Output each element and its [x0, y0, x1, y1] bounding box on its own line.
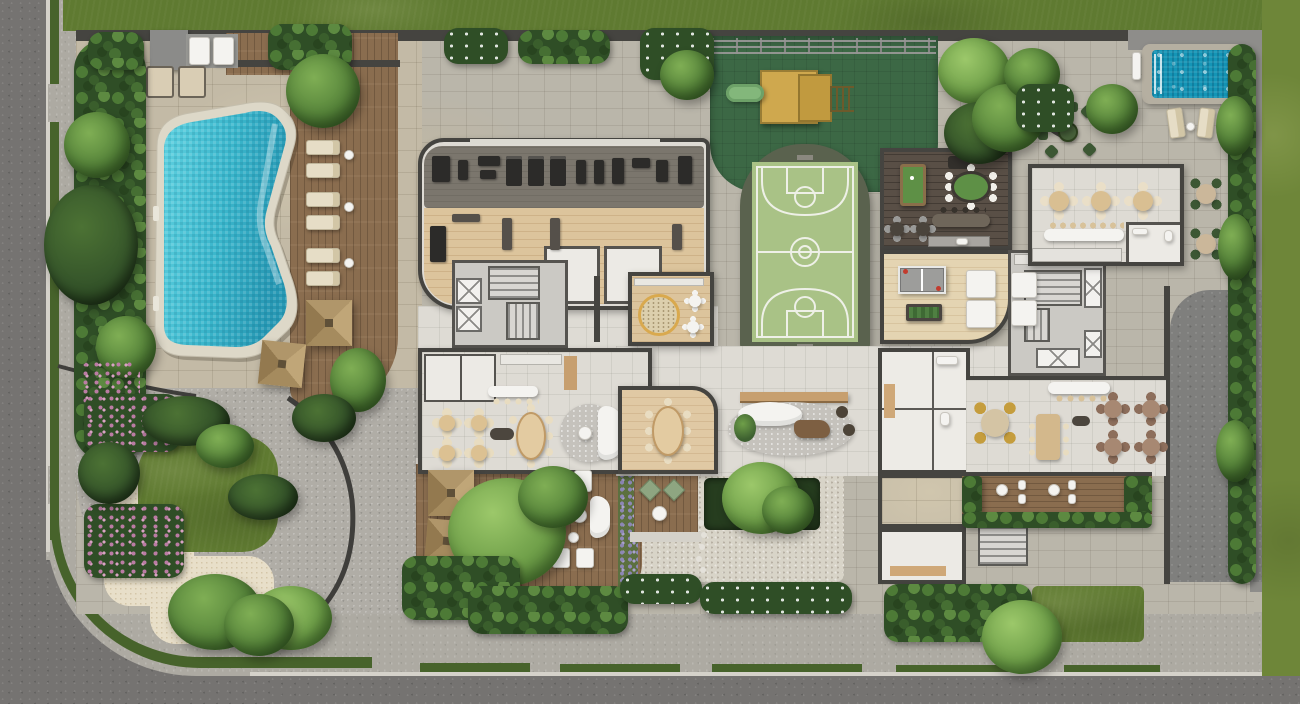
stretch-bench [672, 224, 682, 250]
deck-lounger [576, 548, 594, 568]
meditation-deck [634, 468, 698, 538]
gym-bench [478, 156, 500, 166]
terrace-chair [1018, 480, 1026, 490]
lounge-ottoman [490, 428, 514, 440]
treadmill [528, 156, 544, 186]
cable-tower [502, 218, 512, 250]
stepping-stone [699, 544, 705, 550]
lawn-right [1262, 0, 1300, 676]
lounger-side-table [1186, 122, 1195, 131]
flowering-bush [84, 504, 184, 578]
gym-bench [632, 158, 650, 168]
curb-bottom [250, 672, 1300, 676]
tree [286, 54, 360, 128]
dining-square-table [1096, 430, 1130, 464]
dining-round-table-gold [968, 396, 1022, 450]
bar-stools [936, 206, 986, 214]
storage-room [878, 474, 966, 528]
elevator-shaft [1036, 348, 1080, 368]
deck-umbrella [306, 300, 352, 346]
billiard-ball [910, 176, 914, 180]
shrub [228, 474, 298, 520]
lobby-sofa [966, 270, 996, 298]
shrub [196, 424, 254, 468]
tree [1086, 84, 1138, 134]
verge-gap-driveway [48, 84, 61, 122]
gym-machine [678, 156, 692, 184]
barbell-bench [452, 214, 480, 222]
lawn-top [63, 0, 1300, 31]
foosball-table [906, 304, 942, 321]
pavilion-table [1124, 182, 1162, 220]
billiards-table [900, 164, 926, 206]
pavilion-counter [1044, 229, 1124, 241]
lobby-plant [734, 414, 756, 442]
gym-machine [612, 158, 624, 184]
daybed [189, 37, 210, 65]
playground-ladder [830, 86, 854, 112]
washroom-fixture [1132, 228, 1148, 235]
elevator-shaft [1084, 268, 1102, 308]
lounger-side-table [344, 258, 354, 268]
play-structure-tower [798, 74, 832, 122]
kids-activity-table [684, 290, 706, 312]
terrace-planter [1124, 476, 1152, 514]
kids-activity-table [682, 316, 704, 338]
shrub [1216, 420, 1254, 482]
lobby-sofa [1011, 300, 1037, 326]
tree [224, 594, 294, 656]
lobby-pouf [843, 424, 855, 436]
restaurant-kitchen-counter [500, 354, 562, 365]
site-plan-render [0, 0, 1300, 704]
sun-lounger [306, 192, 340, 207]
lobby-console [740, 392, 848, 401]
kitchenette-sink [956, 238, 968, 245]
private-dining-table [644, 398, 692, 464]
pool-step [153, 296, 159, 311]
washroom-fixture [936, 356, 958, 365]
hedge-bottom [700, 582, 852, 614]
washroom-fixture [940, 412, 950, 426]
dining-square-table [1096, 392, 1130, 426]
elevator-shaft [456, 278, 482, 304]
games-hightop-table [884, 216, 910, 242]
stepping-stone [700, 567, 706, 573]
lobby-wall [594, 276, 600, 342]
tree [762, 486, 814, 534]
basketball-hoop-north [797, 155, 813, 160]
gym-machine [594, 160, 604, 184]
shrub [1218, 214, 1254, 280]
shrub [78, 442, 140, 504]
gym-machine [458, 160, 468, 180]
washroom-fixture [1164, 230, 1173, 242]
restaurant-table [464, 438, 494, 468]
pavilion-table [1040, 182, 1078, 220]
terrace-hedge [962, 512, 1152, 528]
sun-lounger [306, 248, 340, 263]
card-table [944, 164, 998, 210]
support-counter [890, 566, 946, 576]
sun-lounger [306, 163, 340, 178]
shrub [1216, 96, 1254, 156]
gym-machine [576, 160, 586, 184]
hedge-top [88, 32, 144, 70]
terrace-table [1048, 484, 1060, 496]
service-counter [884, 384, 895, 418]
treadmill [550, 156, 566, 186]
tree [64, 112, 130, 178]
stairs-west [488, 266, 540, 300]
terrace-table [996, 484, 1008, 496]
basketball-court-surface [752, 162, 858, 342]
deck-umbrella [258, 340, 306, 388]
dining-ottoman [1072, 416, 1090, 426]
lobby-log-table [794, 420, 830, 438]
plunge-pool-steps [1154, 54, 1166, 94]
pavilion-table [1082, 182, 1120, 220]
dining-square-table [1134, 430, 1168, 464]
pool-cabana [150, 30, 188, 70]
hedge-bottom [620, 574, 702, 604]
treadmill [506, 156, 522, 186]
meditation-deck-edge [630, 532, 702, 542]
lobby-sofa [966, 300, 996, 328]
pool-step [153, 206, 159, 221]
tree [660, 50, 714, 100]
tree [982, 600, 1062, 674]
restaurant-counter [488, 386, 538, 397]
sun-lounger [306, 215, 340, 230]
sun-lounger [306, 140, 340, 155]
hedge-top [518, 30, 610, 64]
terrace-chair [1018, 494, 1026, 504]
stepping-stone [701, 532, 707, 538]
terrace-chair [1068, 480, 1076, 490]
pavilion-kitchen [1032, 248, 1122, 262]
games-bar-counter [932, 214, 990, 227]
pavilion-counter-stools [1046, 222, 1124, 229]
meditation-table [652, 506, 667, 521]
kids-round-rug [638, 294, 680, 336]
lobby-pouf [836, 406, 848, 418]
terrace-planter [962, 476, 982, 514]
hedge-top [444, 28, 508, 64]
lounge-side-table [578, 426, 592, 440]
deck-side-table [568, 532, 579, 543]
restaurant-table [432, 408, 462, 438]
elevator-shaft [456, 306, 482, 332]
gym-machine [656, 160, 668, 182]
lounger-side-table [344, 202, 354, 212]
sun-lounger [306, 271, 340, 286]
daybed [213, 37, 234, 65]
cable-tower [550, 218, 560, 250]
tree [518, 466, 588, 528]
ping-pong-paddle [903, 269, 908, 274]
gym-machine [480, 170, 496, 179]
ping-pong-paddle [936, 286, 941, 291]
playground-fence [712, 38, 936, 54]
elevator-shaft [1084, 330, 1102, 358]
stairs-west-lower [506, 302, 540, 340]
lobby-sofa [1011, 272, 1037, 298]
deck-curved-sofa [590, 496, 610, 538]
tree [44, 185, 138, 305]
terrace-chair [1068, 494, 1076, 504]
dining-rect-chairs [1062, 418, 1070, 458]
multi-station [430, 226, 446, 262]
kids-counter [634, 278, 704, 286]
restaurant-wood-cabinet [564, 356, 577, 390]
lounger-side-table [344, 150, 354, 160]
restaurant-oval-table [508, 404, 554, 468]
daybed-beige [146, 66, 174, 98]
patio-table [1186, 174, 1226, 214]
stepping-stone [698, 520, 704, 526]
gym-rack [432, 156, 450, 182]
dining-rect-table [1036, 414, 1060, 460]
gym-skylight [470, 139, 660, 144]
hedge-bottom [468, 586, 628, 634]
daybed-beige [178, 66, 206, 98]
restaurant-table [432, 438, 462, 468]
dining-square-table [1134, 392, 1168, 426]
restaurant-washrooms [424, 354, 496, 402]
stepping-stone [696, 556, 702, 562]
shrub [292, 394, 356, 442]
pool-bench [1132, 52, 1141, 80]
bistro-planter-bush [1016, 84, 1074, 132]
dining-rect-chairs [1028, 418, 1036, 458]
playground-slide [726, 84, 764, 102]
